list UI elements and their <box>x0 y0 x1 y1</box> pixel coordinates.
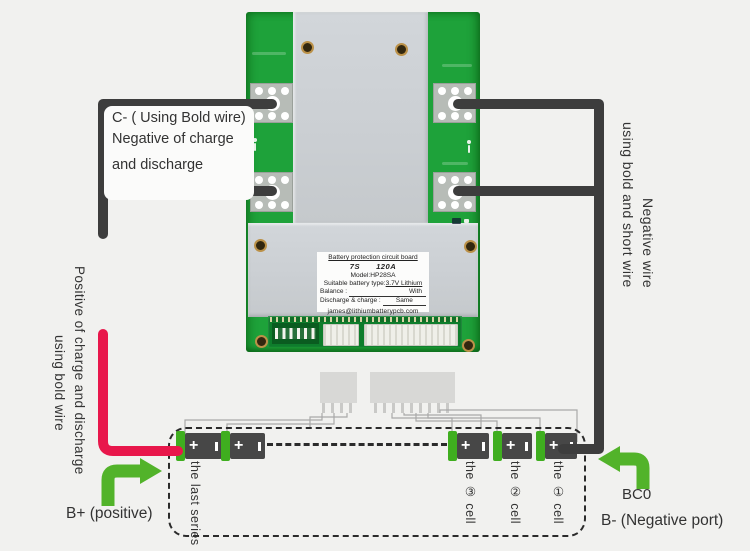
b-minus-arrow-icon <box>620 459 643 489</box>
negative-wire-label-line2: Negative wire <box>640 198 656 288</box>
b-plus-arrow-icon <box>108 471 140 506</box>
negative-wire-label-line1: using bold and short wire <box>620 122 636 288</box>
c-minus-label-line2: Negative of charge <box>112 132 246 148</box>
b-plus-arrowhead-icon <box>140 458 162 484</box>
c-minus-label-line1: C- ( Using Bold wire) <box>112 111 246 127</box>
bms-wiring-diagram: Battery protection circuit board 7S 120A… <box>0 0 750 551</box>
b-minus-label: B- (Negative port) <box>601 512 723 530</box>
c-minus-label-line3: and discharge <box>112 158 246 174</box>
b-minus-wire <box>458 104 599 449</box>
b-plus-positive-wire <box>103 334 178 451</box>
positive-wire-label-line2: using bold wire <box>52 335 67 431</box>
positive-wire-label-line1: Positive of charge and discharge <box>72 266 87 475</box>
bc0-label: BC0 <box>622 486 651 503</box>
c-minus-label: C- ( Using Bold wire) Negative of charge… <box>112 111 246 179</box>
power-wire-layer <box>0 0 750 551</box>
b-plus-label: B+ (positive) <box>66 505 153 523</box>
